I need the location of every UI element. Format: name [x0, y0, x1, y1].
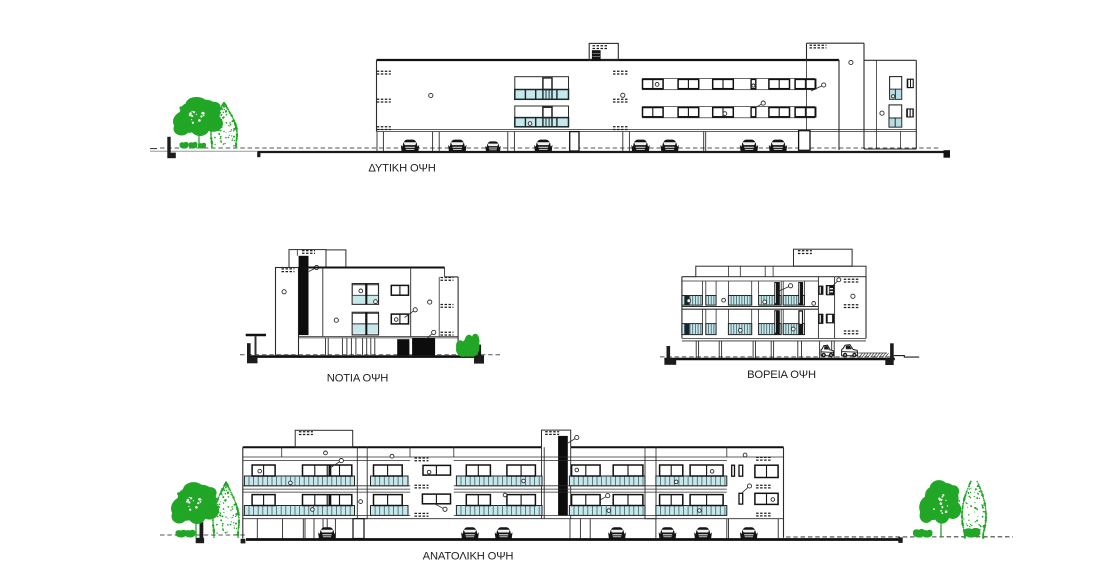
svg-text:ΔΥΤΙΚΗ ΟΨΗ: ΔΥΤΙΚΗ ΟΨΗ: [368, 163, 435, 175]
svg-text:ΝΟΤΙΑ ΟΨΗ: ΝΟΤΙΑ ΟΨΗ: [327, 373, 389, 385]
svg-text:ΒΟΡΕΙΑ ΟΨΗ: ΒΟΡΕΙΑ ΟΨΗ: [747, 369, 816, 381]
svg-text:ΑΝΑΤΟΛΙΚΗ ΟΨΗ: ΑΝΑΤΟΛΙΚΗ ΟΨΗ: [423, 551, 514, 563]
